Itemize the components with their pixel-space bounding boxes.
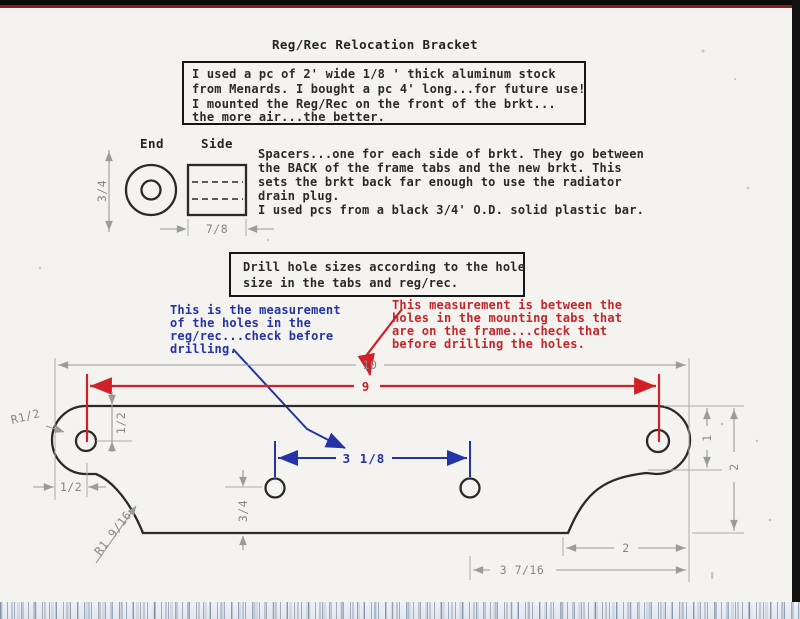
red-note-line: holes in the mounting tabs that — [392, 311, 622, 325]
svg-text:9: 9 — [362, 379, 371, 394]
info-line: from Menards. I bought a pc 4' long...fo… — [192, 82, 586, 96]
spacer-note-line: I used pcs from a black 3/4' O.D. solid … — [258, 203, 644, 217]
side-view-label: Side — [201, 136, 233, 151]
info-line: I mounted the Reg/Rec on the front of th… — [192, 97, 556, 111]
dim-center-hole-bottom-offset: 3/4 — [236, 470, 250, 550]
spacer-end-view: End 3/4 — [95, 136, 176, 232]
dim-plate-height: 2 — [727, 408, 741, 531]
red-callout: This measurement is between the holes in… — [366, 298, 622, 375]
dim-overall-width: 10 — [58, 358, 686, 372]
info-line: I used a pc of 2' wide 1/8 ' thick alumi… — [192, 67, 556, 81]
spacer-note-line: drain plug. — [258, 189, 340, 203]
dim-tab-end-radius: R1/2 — [9, 406, 64, 432]
drill-line: size in the tabs and reg/rec. — [243, 276, 458, 290]
dim-frame-hole-span: 9 — [87, 374, 659, 442]
svg-text:2: 2 — [622, 541, 629, 555]
bracket-drawing-canvas: Reg/Rec Relocation Bracket I used a pc o… — [0, 0, 800, 619]
spacer-note-line: sets the brkt back far enough to use the… — [258, 175, 622, 189]
dim-spacer-od: 3/4 — [95, 180, 109, 202]
blue-note-line: drilling. — [170, 342, 237, 356]
scan-edge-right — [792, 0, 800, 602]
svg-text:R1 9/16: R1 9/16 — [91, 508, 134, 558]
svg-text:1/2: 1/2 — [114, 412, 128, 434]
drill-line: Drill hole sizes according to the hole — [243, 260, 525, 274]
svg-text:1/2: 1/2 — [60, 480, 82, 494]
spacer-note-line: the BACK of the frame tabs and the new b… — [258, 161, 622, 175]
end-view-label: End — [140, 136, 164, 151]
info-box: I used a pc of 2' wide 1/8 ' thick alumi… — [183, 62, 586, 124]
svg-text:1: 1 — [700, 434, 714, 441]
center-hole-right — [461, 479, 480, 498]
svg-text:R1/2: R1/2 — [9, 406, 41, 427]
drawing-title: Reg/Rec Relocation Bracket — [272, 37, 478, 52]
spacer-note-line: Spacers...one for each side of brkt. The… — [258, 147, 644, 161]
svg-text:10: 10 — [363, 358, 378, 372]
drill-box: Drill hole sizes according to the hole s… — [230, 253, 525, 296]
spacer-side-view: Side 7/8 — [160, 136, 274, 236]
dim-tab-hole-top-offset: 1/2 — [112, 392, 128, 452]
dim-bottom-right-offset: 2 — [566, 541, 686, 555]
dim-tab-height: 1 — [700, 408, 714, 468]
dim-hole-to-edge: 3 7/16 — [473, 563, 686, 577]
info-line: the more air...the better. — [192, 110, 385, 124]
svg-text:2: 2 — [727, 463, 741, 470]
scanned-drawing-page: Reg/Rec Relocation Bracket I used a pc o… — [0, 0, 800, 619]
dim-spacer-length: 7/8 — [206, 222, 228, 236]
scan-edge-bottom-streaks — [0, 602, 800, 619]
scan-edge-top-red — [0, 5, 800, 8]
dim-bend-radius: R1 9/16 — [91, 506, 136, 563]
dim-tab-hole-side-offset: 1/2 — [33, 480, 106, 494]
blue-callout: This is the measurement of the holes in … — [170, 303, 345, 448]
blue-note-line: of the holes in the — [170, 316, 311, 330]
svg-text:3/4: 3/4 — [236, 500, 250, 522]
red-note-line: before drilling the holes. — [392, 337, 585, 351]
dim-regrec-hole-span: 3 1/8 — [275, 441, 470, 477]
center-hole-left — [266, 479, 285, 498]
blue-note-line: This is the measurement — [170, 303, 341, 317]
bracket-outline — [52, 406, 690, 533]
svg-text:3 7/16: 3 7/16 — [500, 563, 545, 577]
svg-text:3 1/8: 3 1/8 — [343, 451, 386, 466]
red-note-line: This measurement is between the — [392, 298, 622, 312]
spacer-note: Spacers...one for each side of brkt. The… — [258, 147, 644, 217]
red-note-line: are on the frame...check that — [392, 324, 607, 338]
blue-note-line: reg/rec...check before — [170, 329, 333, 343]
